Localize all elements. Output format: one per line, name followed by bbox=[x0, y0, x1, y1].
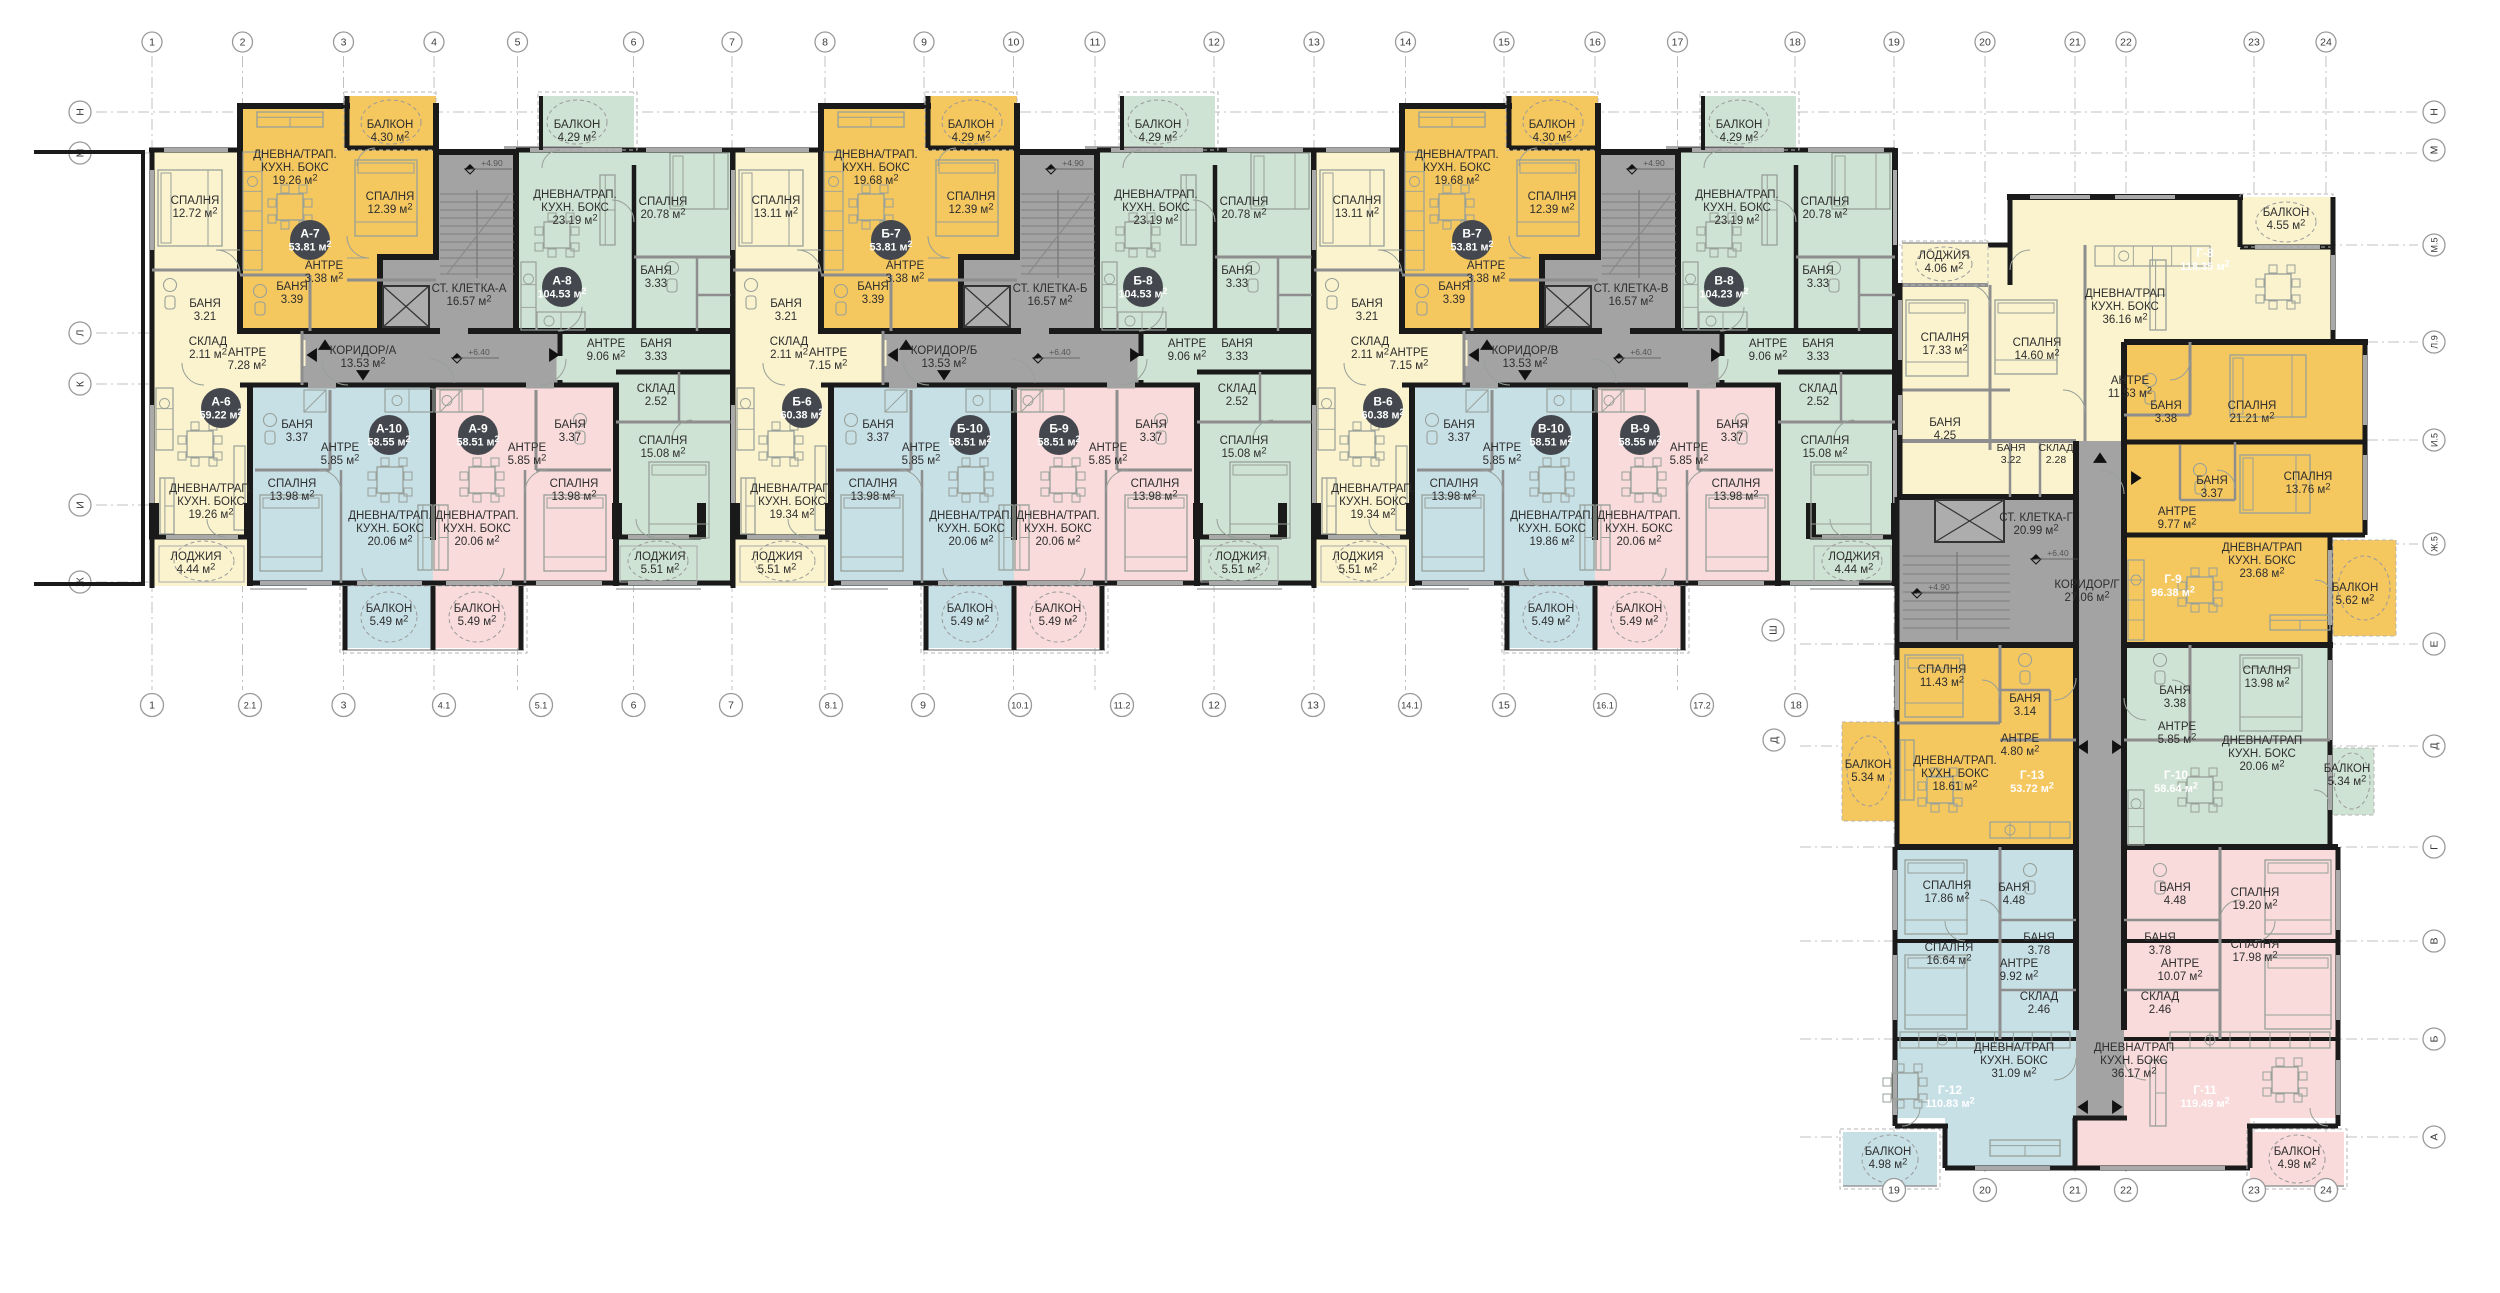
svg-text:10.1: 10.1 bbox=[1011, 701, 1029, 711]
svg-text:КУХН. БОКС: КУХН. БОКС bbox=[842, 162, 910, 174]
svg-text:2.46: 2.46 bbox=[2028, 1004, 2050, 1016]
svg-text:3: 3 bbox=[341, 37, 347, 49]
svg-text:3.33: 3.33 bbox=[1226, 351, 1248, 363]
svg-text:КУХН. БОКС: КУХН. БОКС bbox=[1423, 162, 1491, 174]
svg-text:60.38 м2: 60.38 м2 bbox=[781, 407, 824, 422]
svg-text:ДНЕВНА/ТРАП.: ДНЕВНА/ТРАП. bbox=[1510, 510, 1594, 522]
svg-text:60.38 м2: 60.38 м2 bbox=[1362, 407, 1405, 422]
svg-text:КУХН. БОКС: КУХН. БОКС bbox=[1980, 1055, 2048, 1067]
svg-text:Б: Б bbox=[2429, 1035, 2441, 1042]
svg-text:И.5: И.5 bbox=[2430, 433, 2440, 447]
svg-text:+4.90: +4.90 bbox=[1643, 158, 1665, 168]
svg-text:СКЛАД: СКЛАД bbox=[1218, 383, 1257, 395]
svg-text:+4.90: +4.90 bbox=[1928, 582, 1950, 592]
svg-text:20: 20 bbox=[1979, 1185, 1991, 1197]
svg-text:58.51 м2: 58.51 м2 bbox=[1038, 434, 1081, 449]
svg-text:ДНЕВНА/ТРАП.: ДНЕВНА/ТРАП. bbox=[348, 510, 432, 522]
svg-text:16.1: 16.1 bbox=[1596, 701, 1614, 711]
svg-text:Г-13: Г-13 bbox=[2020, 768, 2044, 782]
svg-text:СТ. КЛЕТКА-А: СТ. КЛЕТКА-А bbox=[432, 283, 507, 295]
svg-text:104.53 м2: 104.53 м2 bbox=[1119, 286, 1168, 301]
svg-text:3.37: 3.37 bbox=[559, 432, 581, 444]
svg-text:5.34 м: 5.34 м bbox=[1851, 772, 1885, 784]
svg-text:КОРИДОР/Г: КОРИДОР/Г bbox=[2054, 579, 2120, 591]
svg-text:2.52: 2.52 bbox=[1226, 396, 1248, 408]
svg-text:11: 11 bbox=[1090, 37, 1101, 49]
svg-text:4: 4 bbox=[431, 37, 437, 49]
svg-text:КУХН. БОКС: КУХН. БОКС bbox=[356, 523, 424, 535]
svg-text:Л.9: Л.9 bbox=[2430, 335, 2440, 348]
svg-text:Н: Н bbox=[75, 108, 87, 116]
svg-text:Ш: Ш bbox=[1768, 625, 1780, 635]
svg-text:10: 10 bbox=[1008, 37, 1020, 49]
svg-text:+6.40: +6.40 bbox=[2047, 548, 2069, 558]
svg-text:СКЛАД: СКЛАД bbox=[2141, 991, 2180, 1003]
svg-text:18: 18 bbox=[1790, 700, 1802, 712]
svg-text:БАЛКОН: БАЛКОН bbox=[1845, 759, 1892, 771]
svg-text:3.21: 3.21 bbox=[194, 311, 216, 323]
svg-text:Г-10: Г-10 bbox=[2164, 768, 2188, 782]
svg-text:Л: Л bbox=[75, 329, 87, 336]
svg-text:ДНЕВНА/ТРАП.: ДНЕВНА/ТРАП. bbox=[1913, 755, 1997, 767]
svg-text:19: 19 bbox=[1888, 1185, 1900, 1197]
svg-text:19: 19 bbox=[1888, 37, 1900, 49]
svg-text:Ж.5: Ж.5 bbox=[2430, 536, 2440, 552]
svg-text:22: 22 bbox=[2120, 37, 2132, 49]
svg-text:21: 21 bbox=[2069, 37, 2081, 49]
svg-text:СТ. КЛЕТКА-Б: СТ. КЛЕТКА-Б bbox=[1013, 283, 1088, 295]
svg-text:Б-7: Б-7 bbox=[881, 227, 901, 241]
svg-text:СТ. КЛЕТКА-В: СТ. КЛЕТКА-В bbox=[1594, 283, 1669, 295]
svg-text:АНТРЕ: АНТРЕ bbox=[2111, 375, 2150, 387]
svg-text:+6.40: +6.40 bbox=[1049, 347, 1071, 357]
svg-text:БАНЯ: БАНЯ bbox=[1443, 419, 1475, 431]
svg-text:2.52: 2.52 bbox=[1807, 396, 1829, 408]
svg-text:6: 6 bbox=[631, 700, 637, 712]
svg-text:А: А bbox=[2429, 1133, 2441, 1140]
svg-text:104.53 м2: 104.53 м2 bbox=[538, 286, 587, 301]
svg-text:СКЛАД: СКЛАД bbox=[2020, 991, 2059, 1003]
svg-text:Д: Д bbox=[1769, 736, 1781, 743]
svg-text:24: 24 bbox=[2320, 37, 2332, 49]
svg-text:17.2: 17.2 bbox=[1693, 701, 1711, 711]
svg-text:3.78: 3.78 bbox=[2149, 945, 2171, 957]
svg-text:КОРИДОР/Б: КОРИДОР/Б bbox=[911, 345, 978, 357]
svg-text:ДНЕВНА/ТРАП: ДНЕВНА/ТРАП bbox=[2094, 1042, 2174, 1054]
svg-text:ДНЕВНА/ТРАП: ДНЕВНА/ТРАП bbox=[2222, 542, 2302, 554]
svg-text:58.51 м2: 58.51 м2 bbox=[949, 434, 992, 449]
svg-text:БАНЯ: БАНЯ bbox=[1802, 265, 1834, 277]
svg-text:БАНЯ: БАНЯ bbox=[1716, 419, 1748, 431]
svg-text:КУХН. БОКС: КУХН. БОКС bbox=[937, 523, 1005, 535]
svg-text:3.33: 3.33 bbox=[645, 351, 667, 363]
svg-text:23: 23 bbox=[2248, 37, 2260, 49]
svg-text:ДНЕВНА/ТРАП.: ДНЕВНА/ТРАП. bbox=[533, 189, 617, 201]
svg-text:58.55 м2: 58.55 м2 bbox=[368, 434, 411, 449]
svg-text:104.23 м2: 104.23 м2 bbox=[1700, 286, 1749, 301]
svg-text:Д: Д bbox=[2429, 742, 2441, 749]
svg-text:ДНЕВНА/ТРАП: ДНЕВНА/ТРАП bbox=[2085, 288, 2165, 300]
svg-text:БАНЯ: БАНЯ bbox=[770, 298, 802, 310]
svg-text:2: 2 bbox=[240, 37, 246, 49]
svg-text:БАНЯ: БАНЯ bbox=[281, 419, 313, 431]
svg-text:59.22 м2: 59.22 м2 bbox=[200, 407, 243, 422]
svg-text:1: 1 bbox=[149, 37, 155, 49]
svg-text:ДНЕВНА/ТРАП.: ДНЕВНА/ТРАП. bbox=[1597, 510, 1681, 522]
svg-text:КУХН. БОКС: КУХН. БОКС bbox=[1122, 202, 1190, 214]
svg-text:ДНЕВНА/ТРАП.: ДНЕВНА/ТРАП. bbox=[253, 149, 337, 161]
svg-text:1: 1 bbox=[149, 700, 155, 712]
svg-text:ДНЕВНА/ТРАП.: ДНЕВНА/ТРАП. bbox=[1415, 149, 1499, 161]
svg-text:А-10: А-10 bbox=[376, 422, 402, 436]
svg-text:16: 16 bbox=[1589, 37, 1601, 49]
svg-text:СКЛАД: СКЛАД bbox=[2038, 442, 2073, 454]
svg-text:КУХН. БОКС: КУХН. БОКС bbox=[758, 496, 826, 508]
svg-text:БАНЯ: БАНЯ bbox=[2144, 932, 2176, 944]
svg-text:ДНЕВНА/ТРАП.: ДНЕВНА/ТРАП. bbox=[1331, 483, 1415, 495]
svg-text:7: 7 bbox=[728, 700, 734, 712]
svg-text:20: 20 bbox=[1979, 37, 1991, 49]
svg-text:А-6: А-6 bbox=[211, 395, 231, 409]
svg-text:КУХН. БОКС: КУХН. БОКС bbox=[1339, 496, 1407, 508]
svg-text:13: 13 bbox=[1307, 700, 1319, 712]
svg-text:БАНЯ: БАНЯ bbox=[1221, 265, 1253, 277]
svg-text:3.78: 3.78 bbox=[2028, 945, 2050, 957]
svg-text:+4.90: +4.90 bbox=[1062, 158, 1084, 168]
svg-text:КУХН. БОКС: КУХН. БОКС bbox=[2091, 301, 2159, 313]
svg-text:5.1: 5.1 bbox=[535, 701, 548, 711]
svg-text:СКЛАД: СКЛАД bbox=[1799, 383, 1838, 395]
svg-text:13: 13 bbox=[1308, 37, 1320, 49]
svg-text:12: 12 bbox=[1208, 37, 1220, 49]
svg-text:Г-8: Г-8 bbox=[2196, 246, 2214, 260]
svg-text:3.21: 3.21 bbox=[1356, 311, 1378, 323]
svg-text:БАНЯ: БАНЯ bbox=[1997, 442, 2026, 454]
svg-text:СТ. КЛЕТКА-Г: СТ. КЛЕТКА-Г bbox=[1999, 512, 2073, 524]
svg-text:М: М bbox=[2429, 146, 2441, 155]
svg-text:3.37: 3.37 bbox=[867, 432, 889, 444]
svg-text:110.83 м2: 110.83 м2 bbox=[1925, 1096, 1974, 1111]
svg-text:ДНЕВНА/ТРАП.: ДНЕВНА/ТРАП. bbox=[1114, 189, 1198, 201]
svg-text:В-9: В-9 bbox=[1630, 422, 1650, 436]
svg-text:А-7: А-7 bbox=[300, 227, 320, 241]
svg-text:17: 17 bbox=[1672, 37, 1684, 49]
svg-text:Б-6: Б-6 bbox=[792, 395, 812, 409]
svg-text:КУХН. БОКС: КУХН. БОКС bbox=[1605, 523, 1673, 535]
svg-text:КУХН. БОКС: КУХН. БОКС bbox=[1703, 202, 1771, 214]
svg-text:24: 24 bbox=[2320, 1185, 2332, 1197]
svg-text:В: В bbox=[2429, 937, 2441, 944]
svg-text:+6.40: +6.40 bbox=[1630, 347, 1652, 357]
svg-text:КУХН. БОКС: КУХН. БОКС bbox=[541, 202, 609, 214]
svg-text:БАНЯ: БАНЯ bbox=[276, 281, 308, 293]
svg-text:5: 5 bbox=[515, 37, 521, 49]
svg-text:53.81 м2: 53.81 м2 bbox=[289, 239, 332, 254]
svg-text:6: 6 bbox=[631, 37, 637, 49]
svg-text:+4.90: +4.90 bbox=[481, 158, 503, 168]
svg-text:ДНЕВНА/ТРАП.: ДНЕВНА/ТРАП. bbox=[1695, 189, 1779, 201]
svg-text:3.37: 3.37 bbox=[286, 432, 308, 444]
svg-text:КУХН. БОКС: КУХН. БОКС bbox=[177, 496, 245, 508]
svg-text:3.33: 3.33 bbox=[1807, 351, 1829, 363]
svg-text:Б-9: Б-9 bbox=[1049, 422, 1069, 436]
svg-text:СКЛАД: СКЛАД bbox=[637, 383, 676, 395]
svg-text:9: 9 bbox=[920, 700, 926, 712]
svg-text:КУХН. БОКС: КУХН. БОКС bbox=[261, 162, 329, 174]
svg-text:7: 7 bbox=[729, 37, 735, 49]
svg-text:3.39: 3.39 bbox=[1443, 294, 1465, 306]
svg-text:3.37: 3.37 bbox=[1721, 432, 1743, 444]
svg-text:А-9: А-9 bbox=[468, 422, 488, 436]
svg-text:Г-9: Г-9 bbox=[2164, 572, 2182, 586]
svg-text:3.14: 3.14 bbox=[2014, 706, 2037, 718]
svg-text:2.1: 2.1 bbox=[244, 701, 257, 711]
svg-text:БАНЯ: БАНЯ bbox=[1135, 419, 1167, 431]
svg-text:ДНЕВНА/ТРАП.: ДНЕВНА/ТРАП. bbox=[169, 483, 253, 495]
svg-text:БАНЯ: БАНЯ bbox=[640, 338, 672, 350]
svg-text:18: 18 bbox=[1789, 37, 1801, 49]
svg-text:А-8: А-8 bbox=[552, 274, 572, 288]
svg-text:КОРИДОР/А: КОРИДОР/А bbox=[330, 345, 397, 357]
svg-text:4.1: 4.1 bbox=[438, 701, 451, 711]
svg-text:ДНЕВНА/ТРАП.: ДНЕВНА/ТРАП. bbox=[750, 483, 834, 495]
svg-text:Е: Е bbox=[2429, 640, 2441, 647]
svg-text:2.46: 2.46 bbox=[2149, 1004, 2171, 1016]
svg-text:БАНЯ: БАНЯ bbox=[640, 265, 672, 277]
svg-text:ДНЕВНА/ТРАП: ДНЕВНА/ТРАП bbox=[1974, 1042, 2054, 1054]
svg-text:БАНЯ: БАНЯ bbox=[857, 281, 889, 293]
svg-text:БАНЯ: БАНЯ bbox=[2023, 932, 2055, 944]
svg-text:КОРИДОР/В: КОРИДОР/В bbox=[1492, 345, 1559, 357]
svg-text:Г: Г bbox=[2429, 844, 2441, 850]
svg-text:БАНЯ: БАНЯ bbox=[1221, 338, 1253, 350]
svg-text:22: 22 bbox=[2120, 1185, 2132, 1197]
svg-text:АНТРЕ: АНТРЕ bbox=[2161, 958, 2200, 970]
svg-text:БАНЯ: БАНЯ bbox=[1438, 281, 1470, 293]
svg-text:14.1: 14.1 bbox=[1401, 701, 1419, 711]
svg-text:БАНЯ: БАНЯ bbox=[2009, 693, 2041, 705]
svg-text:ДНЕВНА/ТРАП.: ДНЕВНА/ТРАП. bbox=[435, 510, 519, 522]
svg-text:Н: Н bbox=[2429, 108, 2441, 116]
svg-text:3.39: 3.39 bbox=[281, 294, 303, 306]
svg-text:БАНЯ: БАНЯ bbox=[1929, 417, 1961, 429]
svg-text:БАНЯ: БАНЯ bbox=[2196, 475, 2228, 487]
svg-text:8: 8 bbox=[822, 37, 828, 49]
svg-text:3.37: 3.37 bbox=[1448, 432, 1470, 444]
svg-text:12: 12 bbox=[1208, 700, 1220, 712]
svg-text:КУХН. БОКС: КУХН. БОКС bbox=[1921, 768, 1989, 780]
svg-text:11.2: 11.2 bbox=[1114, 701, 1131, 711]
svg-text:2.52: 2.52 bbox=[645, 396, 667, 408]
svg-text:ДНЕВНА/ТРАП: ДНЕВНА/ТРАП bbox=[2222, 735, 2302, 747]
svg-text:15: 15 bbox=[1498, 700, 1510, 712]
svg-text:БАНЯ: БАНЯ bbox=[862, 419, 894, 431]
svg-text:21: 21 bbox=[2069, 1185, 2081, 1197]
svg-text:КУХН. БОКС: КУХН. БОКС bbox=[1518, 523, 1586, 535]
svg-text:58.64 м2: 58.64 м2 bbox=[2154, 781, 2198, 796]
svg-text:119.49 м2: 119.49 м2 bbox=[2180, 1096, 2229, 1111]
svg-text:58.51 м2: 58.51 м2 bbox=[457, 434, 500, 449]
svg-text:БАНЯ: БАНЯ bbox=[2159, 882, 2191, 894]
svg-text:58.55 м2: 58.55 м2 bbox=[1619, 434, 1662, 449]
svg-text:В-7: В-7 bbox=[1462, 227, 1482, 241]
svg-text:53.72 м2: 53.72 м2 bbox=[2010, 781, 2054, 796]
svg-text:3.38: 3.38 bbox=[2164, 698, 2186, 710]
svg-text:БАНЯ: БАНЯ bbox=[1802, 338, 1834, 350]
svg-text:БАНЯ: БАНЯ bbox=[1351, 298, 1383, 310]
svg-text:4.48: 4.48 bbox=[2003, 895, 2025, 907]
svg-text:53.81 м2: 53.81 м2 bbox=[870, 239, 913, 254]
svg-text:М.5: М.5 bbox=[2430, 237, 2440, 252]
svg-text:ДНЕВНА/ТРАП.: ДНЕВНА/ТРАП. bbox=[1016, 510, 1100, 522]
svg-text:КУХН. БОКС: КУХН. БОКС bbox=[2100, 1055, 2168, 1067]
svg-text:2.28: 2.28 bbox=[2046, 454, 2067, 466]
svg-text:15: 15 bbox=[1498, 37, 1510, 49]
svg-text:9: 9 bbox=[921, 37, 927, 49]
svg-text:Г-12: Г-12 bbox=[1938, 1083, 1962, 1097]
svg-text:Г-11: Г-11 bbox=[2193, 1083, 2217, 1097]
svg-text:4.25: 4.25 bbox=[1934, 430, 1956, 442]
svg-text:23: 23 bbox=[2248, 1185, 2260, 1197]
svg-text:3.38: 3.38 bbox=[2155, 413, 2177, 425]
svg-text:3.22: 3.22 bbox=[2001, 454, 2022, 466]
svg-text:БАНЯ: БАНЯ bbox=[189, 298, 221, 310]
svg-text:В-8: В-8 bbox=[1714, 274, 1734, 288]
svg-text:53.81 м2: 53.81 м2 bbox=[1451, 239, 1494, 254]
svg-text:КУХН. БОКС: КУХН. БОКС bbox=[443, 523, 511, 535]
svg-text:118.35 м2: 118.35 м2 bbox=[2180, 259, 2229, 274]
svg-text:Б-8: Б-8 bbox=[1133, 274, 1153, 288]
svg-text:3.21: 3.21 bbox=[775, 311, 797, 323]
svg-text:3.37: 3.37 bbox=[1140, 432, 1162, 444]
svg-text:96.38 м2: 96.38 м2 bbox=[2151, 585, 2195, 600]
svg-text:3.33: 3.33 bbox=[645, 278, 667, 290]
svg-text:ДНЕВНА/ТРАП.: ДНЕВНА/ТРАП. bbox=[834, 149, 918, 161]
svg-text:В-6: В-6 bbox=[1373, 395, 1393, 409]
svg-text:14: 14 bbox=[1400, 37, 1412, 49]
svg-text:БАНЯ: БАНЯ bbox=[2150, 400, 2182, 412]
svg-text:8.1: 8.1 bbox=[825, 701, 838, 711]
svg-text:БАНЯ: БАНЯ bbox=[2159, 685, 2191, 697]
svg-text:3: 3 bbox=[341, 700, 347, 712]
svg-text:КУХН. БОКС: КУХН. БОКС bbox=[2228, 555, 2296, 567]
svg-text:БАНЯ: БАНЯ bbox=[554, 419, 586, 431]
svg-text:3.33: 3.33 bbox=[1807, 278, 1829, 290]
svg-text:3.33: 3.33 bbox=[1226, 278, 1248, 290]
svg-text:КУХН. БОКС: КУХН. БОКС bbox=[1024, 523, 1092, 535]
svg-text:ДНЕВНА/ТРАП.: ДНЕВНА/ТРАП. bbox=[929, 510, 1013, 522]
svg-text:Б-10: Б-10 bbox=[957, 422, 983, 436]
svg-text:В-10: В-10 bbox=[1538, 422, 1564, 436]
svg-text:+6.40: +6.40 bbox=[468, 347, 490, 357]
svg-text:К: К bbox=[75, 380, 87, 387]
svg-text:БАНЯ: БАНЯ bbox=[1998, 882, 2030, 894]
svg-text:3.39: 3.39 bbox=[862, 294, 884, 306]
svg-text:4.48: 4.48 bbox=[2164, 895, 2186, 907]
svg-text:И: И bbox=[75, 501, 87, 509]
svg-text:3.37: 3.37 bbox=[2201, 488, 2223, 500]
svg-text:58.51 м2: 58.51 м2 bbox=[1530, 434, 1573, 449]
svg-text:КУХН. БОКС: КУХН. БОКС bbox=[2228, 748, 2296, 760]
